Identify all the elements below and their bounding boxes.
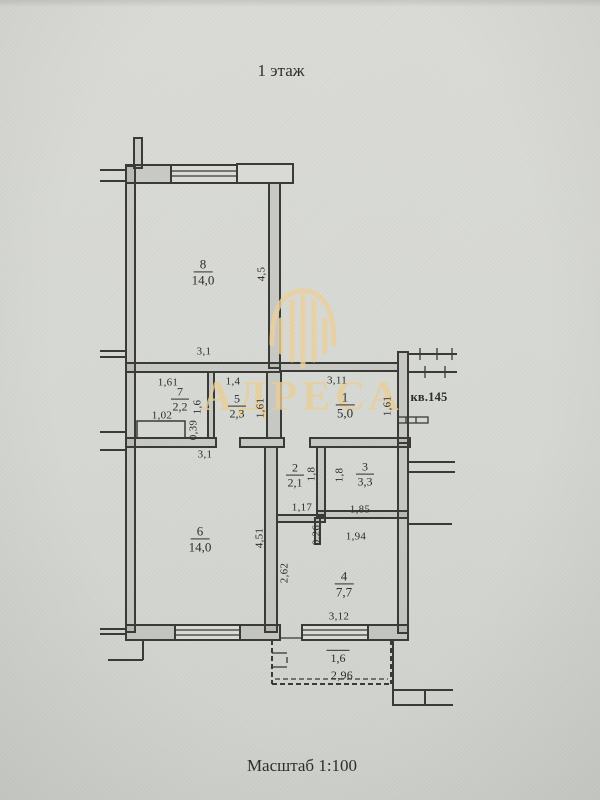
balcony-area-label: 1,6: [327, 649, 350, 667]
page-title: 1 этаж: [258, 61, 305, 81]
dim-hall7-top: 1,61: [158, 377, 178, 390]
room-number: 1: [336, 390, 355, 405]
room-number: 6: [191, 524, 210, 539]
dim-room4-width: 3,12: [329, 611, 349, 624]
room-number: 8: [194, 257, 213, 272]
room-number: 3: [356, 461, 374, 475]
floor-plan-svg: [0, 0, 600, 800]
dim-room8-height: 4,5: [256, 267, 269, 282]
apartment-number-label: кв.145: [410, 390, 447, 404]
room-area: 14,0: [192, 272, 215, 288]
dim-hall1-height: 1,61: [382, 396, 395, 416]
dim-room2-height: 1,8: [306, 467, 319, 482]
dim-hall1-top: 3,11: [327, 375, 347, 388]
dim-hall7-height: 1,6: [192, 400, 205, 415]
dim-room4-left-height: 2,62: [279, 563, 292, 583]
room-area: 2,3: [228, 406, 246, 421]
room-label-2: 2 2,1: [286, 462, 304, 491]
balcony-area-value: 1,6: [327, 650, 350, 666]
dim-closet-depth: 0,39: [188, 420, 201, 440]
room-area: 14,0: [189, 539, 212, 555]
dim-room2-width: 1,17: [292, 502, 312, 515]
window-room8: [171, 165, 237, 183]
room-label-7: 7 2,2: [171, 386, 189, 415]
window-room4: [302, 625, 368, 640]
dim-room3-width: 1,85: [350, 504, 370, 517]
dim-room4-top-width: 1,94: [346, 531, 366, 544]
room-number: 4: [335, 569, 354, 584]
scale-label: Масштаб 1:100: [247, 756, 357, 776]
dim-room6-top: 3,1: [198, 449, 213, 462]
room-number: 2: [286, 462, 304, 476]
dim-hall5-top: 1,4: [226, 376, 241, 389]
window-room6: [175, 625, 240, 640]
room-area: 5,0: [336, 405, 355, 421]
room-label-3: 3 3,3: [356, 461, 374, 490]
room-label-4: 4 7,7: [335, 569, 354, 600]
dim-balcony-width: 2,96: [331, 669, 353, 683]
watermark-crown-logo: [272, 291, 334, 366]
room-label-1: 1 5,0: [336, 390, 355, 421]
room-area: 2,1: [286, 475, 304, 490]
dim-room6-height: 4,51: [254, 528, 267, 548]
closet-outline: [137, 421, 185, 438]
room-label-5: 5 2,3: [228, 393, 246, 422]
dim-hall5-height: 1,61: [255, 398, 268, 418]
dim-room8-width: 3,1: [197, 346, 212, 359]
room-label-8: 8 14,0: [192, 257, 215, 288]
dim-room3-height: 1,8: [334, 468, 347, 483]
room-label-6: 6 14,0: [189, 524, 212, 555]
scanned-floor-plan-page: АДРЕСА 1 этаж Масштаб 1:100 кв.145 8 14,…: [0, 0, 600, 800]
room-area: 7,7: [335, 584, 354, 600]
dim-step-height: 0,26: [311, 525, 324, 545]
room-area: 3,3: [356, 474, 374, 489]
room-area: 2,2: [171, 399, 189, 414]
room-number: 5: [228, 393, 246, 407]
dim-closet-width: 1,02: [152, 410, 172, 423]
